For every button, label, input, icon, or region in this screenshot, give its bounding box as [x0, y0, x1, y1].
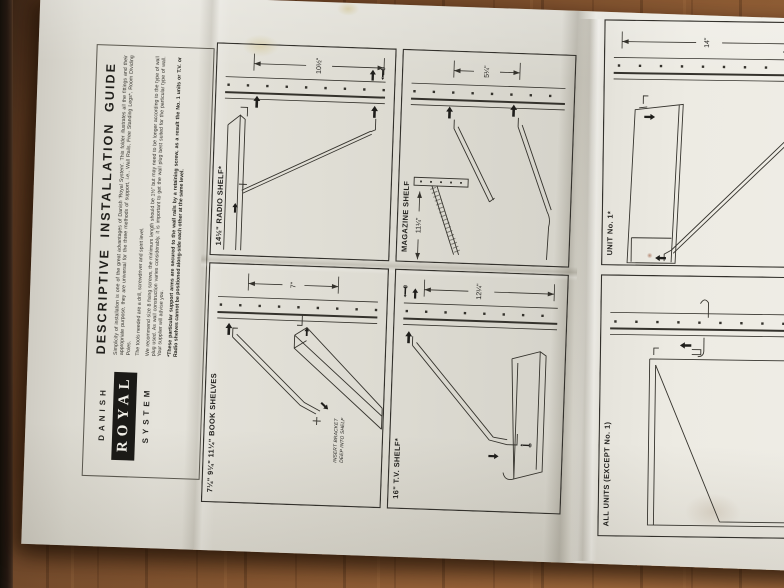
insert-arrow-icon [680, 342, 691, 349]
cover-text: DESCRIPTIVE INSTALLATION GUIDE Simplicit… [94, 54, 206, 357]
rail-holes [413, 91, 565, 96]
wall-rail-drawing [217, 296, 378, 323]
rail-holes [227, 85, 385, 91]
dimension-arrow: 12¼" [424, 280, 555, 303]
panel-book-shelves: 7" INSERT [201, 262, 389, 508]
insert-arrow-icon [510, 105, 517, 117]
dimension-label: 12¼" [476, 283, 484, 300]
wall-rail-drawing [403, 303, 558, 330]
screw-icon [520, 443, 531, 447]
insert-arrow-icon [319, 401, 330, 412]
panel-label: 7¼" 9¼" 11¼" BOOK SHELVES [205, 373, 218, 493]
panel-label: UNIT No. 1* [605, 211, 615, 256]
table-edge [0, 0, 13, 588]
bracket-diagram [647, 299, 784, 527]
insert-note-line1: INSERT BRACKET [332, 417, 340, 462]
insert-arrow-icon [405, 331, 412, 343]
leaflet-paper: DANISH ROYAL SYSTEM DESCRIPTIVE INSTALLA… [21, 0, 784, 572]
insert-arrow-icon [412, 288, 418, 298]
bracket-diagram [412, 114, 555, 260]
dimension-label: 14" [704, 37, 711, 48]
brand-logo: DANISH ROYAL SYSTEM [90, 364, 195, 469]
dimension-label: 10½" [315, 57, 324, 74]
photo-of-installation-leaflet: DANISH ROYAL SYSTEM DESCRIPTIVE INSTALLA… [0, 0, 784, 588]
insert-arrow-icon [225, 323, 232, 335]
bracket-diagram [408, 336, 547, 480]
screw-icon [380, 67, 385, 80]
wall-rail-drawing [225, 77, 386, 104]
panel-label: MAGAZINE SHELF [400, 180, 411, 252]
insert-arrow-icon [488, 453, 498, 459]
insert-arrow-icon [253, 96, 260, 108]
panel-tv-shelf: 12¼" 16" T.V. SHELF* [387, 269, 569, 515]
back-cover-print: DANISH ROYAL SYSTEM DESCRIPTIVE INSTALLA… [82, 44, 215, 480]
brand-danish: DANISH [97, 386, 108, 445]
dimension-arrow: 7" [248, 274, 339, 294]
brand-system: SYSTEM [141, 386, 152, 447]
drop-dimension-arrow: 11¼" [414, 191, 423, 259]
wall-rail-drawing [614, 57, 784, 81]
panel-label: 16" T.V. SHELF* [391, 438, 402, 499]
diagram-grid: 10½" 14½" RADI [201, 42, 577, 520]
panel-border [396, 49, 576, 267]
insert-note-line2: DEEP INTO SHELF [339, 417, 347, 463]
dimension-arrow: 10½" [254, 54, 385, 77]
back-cover-panel: DANISH ROYAL SYSTEM DESCRIPTIVE INSTALLA… [81, 44, 218, 486]
brand-royal-box: ROYAL [111, 372, 137, 461]
insert-note: INSERT BRACKET DEEP INTO SHELF [332, 416, 346, 463]
drop-dimension-label: 11¼" [415, 217, 423, 233]
panel-border [210, 43, 396, 261]
right-fold-section: 14" [571, 19, 784, 565]
rail-holes [220, 305, 378, 311]
dimension-label: 5¼" [484, 65, 491, 78]
panel-border [387, 269, 568, 514]
insert-arrow-icon [371, 106, 378, 118]
bracket-diagram [627, 96, 784, 265]
dimension-arrow: 14" [622, 32, 784, 51]
panel-unit-no-1: 14" [601, 19, 784, 268]
right-fold-panels: 14" [597, 19, 784, 539]
panel-radio-shelf: 10½" 14½" RADI [209, 42, 396, 261]
panel-label: ALL UNITS (EXCEPT No. 1) [601, 421, 611, 526]
guide-paragraphs: Simplicity of installation is one of the… [113, 55, 190, 357]
insert-arrow-icon [446, 106, 453, 118]
dimension-label: 7" [290, 281, 297, 288]
panel-magazine-shelf: 5¼" [395, 49, 576, 268]
bracket-diagram [224, 107, 376, 255]
hatched-rod [431, 188, 460, 253]
rail-holes [406, 311, 558, 316]
screw-icon [403, 285, 407, 297]
rail-holes [618, 65, 784, 68]
insert-arrow-icon [644, 114, 655, 120]
rail-holes [614, 321, 784, 324]
panel-all-units: ALL UNITS (EXCEPT No. 1) [597, 274, 784, 539]
insert-arrow-icon [370, 70, 376, 81]
wall-rail-drawing [411, 83, 566, 110]
dimension-arrow: 5¼" [454, 61, 521, 80]
shelf-holes [420, 181, 462, 182]
wall-rail-drawing [610, 312, 784, 337]
